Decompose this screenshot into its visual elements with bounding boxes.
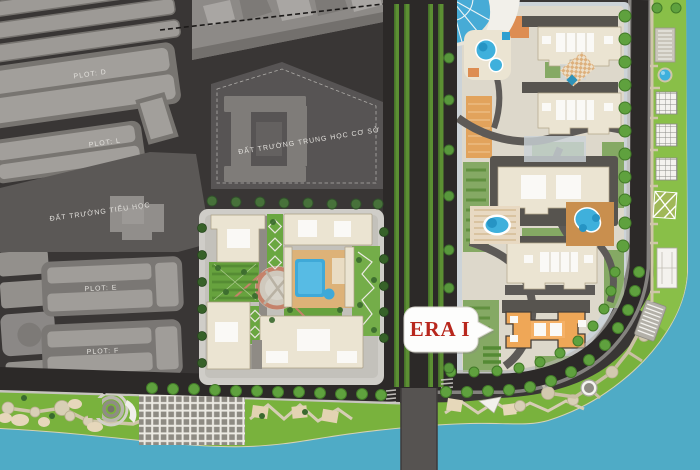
svg-text:PLOT: F: PLOT: F — [87, 348, 120, 356]
svg-text:ERA I: ERA I — [410, 317, 471, 341]
svg-text:PLOT: E: PLOT: E — [84, 285, 117, 293]
